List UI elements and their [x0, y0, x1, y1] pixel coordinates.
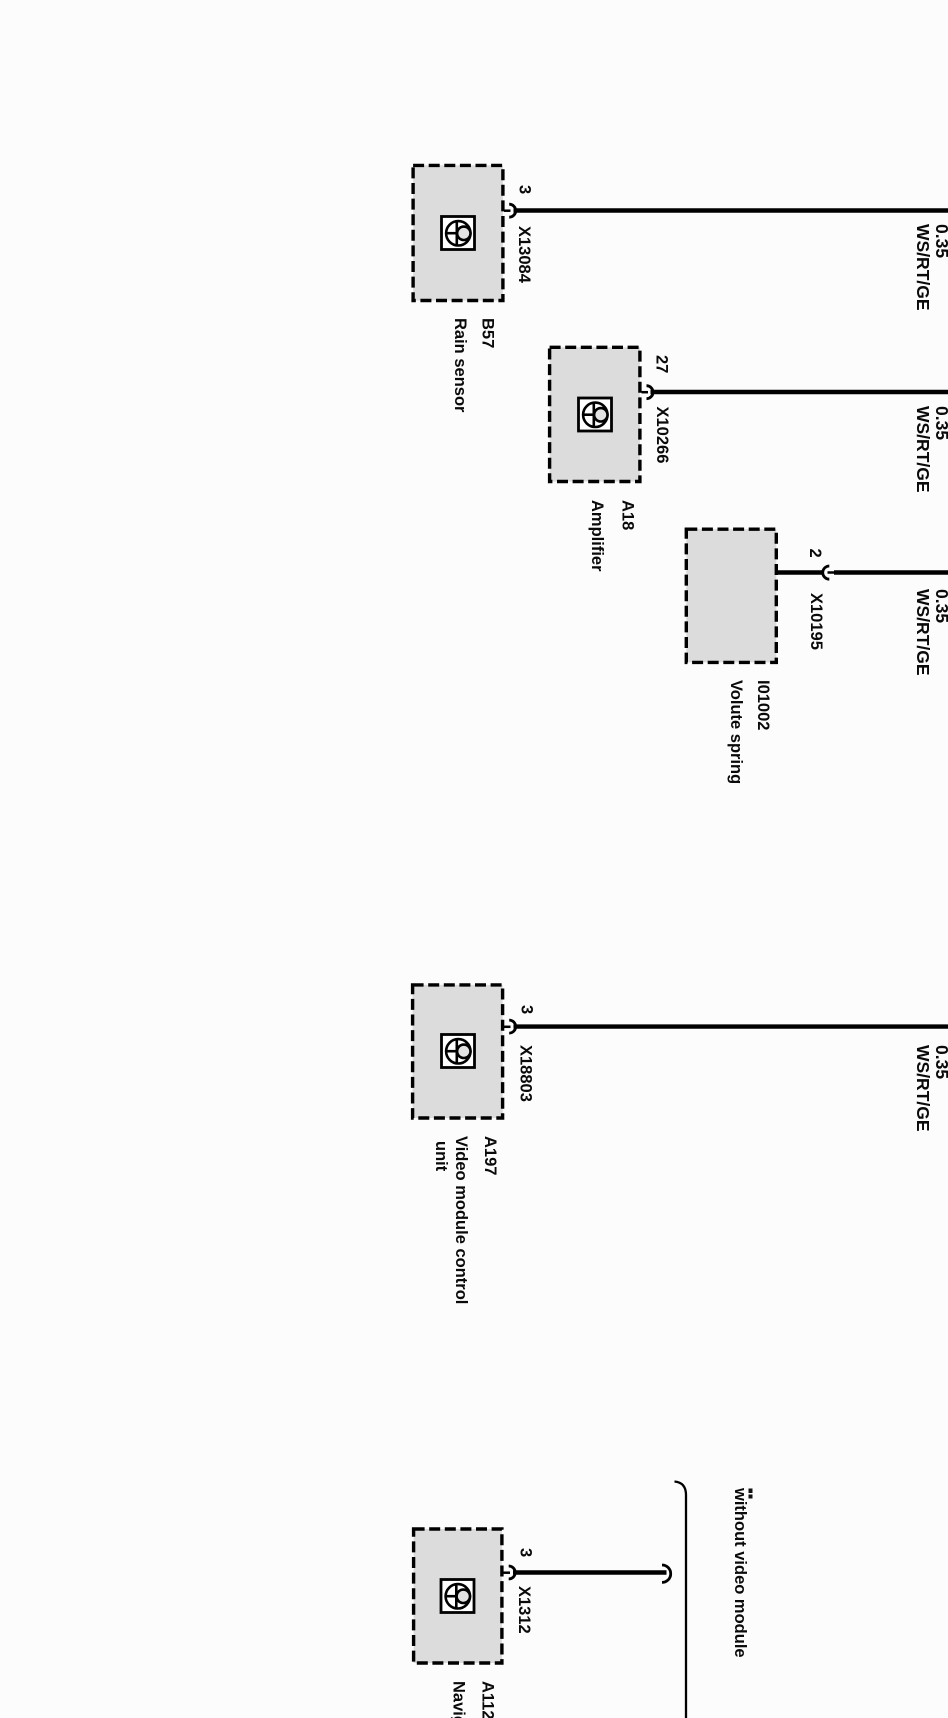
svg-text:WS/RT/GE: WS/RT/GE: [913, 589, 933, 676]
svg-text:unit: unit: [432, 1141, 450, 1172]
svg-text:2: 2: [806, 549, 824, 558]
svg-text:Volute spring: Volute spring: [727, 680, 745, 784]
svg-text:27: 27: [653, 355, 671, 373]
svg-text:Rain sensor: Rain sensor: [451, 318, 469, 413]
svg-text:Video module control: Video module control: [452, 1136, 470, 1304]
svg-text:0.35: 0.35: [932, 406, 948, 440]
svg-text:Amplifier: Amplifier: [588, 500, 606, 572]
svg-text:Navigation system: Navigation system: [450, 1681, 468, 1718]
svg-text:A197: A197: [481, 1136, 499, 1175]
svg-text:WS/RT/GE: WS/RT/GE: [913, 1045, 933, 1132]
svg-text:WS/RT/GE: WS/RT/GE: [913, 406, 933, 493]
svg-text:X10266: X10266: [653, 407, 671, 464]
svg-text:WS/RT/GE: WS/RT/GE: [913, 224, 933, 311]
svg-text:A18: A18: [619, 500, 637, 530]
svg-text:without video module: without video module: [731, 1487, 749, 1658]
svg-text:X1312: X1312: [515, 1586, 533, 1634]
svg-text:0.35: 0.35: [932, 224, 948, 258]
svg-text:A112: A112: [479, 1681, 497, 1718]
svg-text:3: 3: [516, 185, 534, 194]
svg-text:0.35: 0.35: [932, 589, 948, 623]
svg-text:X10195: X10195: [807, 593, 825, 650]
svg-text:0.35: 0.35: [932, 1045, 948, 1079]
svg-text:B57: B57: [479, 318, 497, 348]
svg-text:3: 3: [517, 1548, 535, 1557]
svg-text:3: 3: [518, 1005, 536, 1014]
svg-text:X13084: X13084: [515, 226, 533, 284]
svg-text:I01002: I01002: [754, 680, 772, 730]
svg-text:X18803: X18803: [517, 1045, 535, 1102]
